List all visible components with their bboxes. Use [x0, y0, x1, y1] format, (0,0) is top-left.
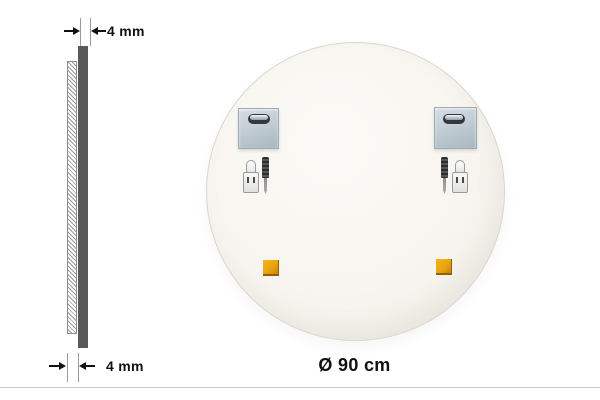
bottom-divider-line	[0, 387, 600, 388]
screw-tip	[264, 178, 267, 194]
screw-thread	[441, 157, 448, 178]
mirror-backing-hatch	[67, 61, 77, 334]
mounting-plate-left-icon	[238, 108, 279, 149]
keyhole-slot-icon	[248, 114, 270, 124]
extension-line	[80, 18, 81, 46]
extension-line	[67, 353, 68, 382]
arrow-right-icon	[64, 30, 74, 32]
plug-body	[243, 172, 259, 193]
wall-plug-right-icon	[452, 160, 468, 193]
adhesive-pad-right-icon	[436, 259, 452, 275]
wall-plug-left-icon	[243, 160, 259, 193]
adhesive-pad-left-icon	[263, 260, 279, 276]
screw-left-icon	[262, 157, 269, 194]
arrow-right-icon	[49, 365, 60, 367]
screw-thread	[262, 157, 269, 178]
product-dimension-diagram: 4 mm 4 mm	[0, 0, 600, 400]
screw-right-icon	[441, 157, 448, 194]
diameter-label: Ø 90 cm	[206, 355, 503, 376]
arrow-left-icon	[97, 30, 106, 32]
mirror-back-view	[206, 42, 505, 341]
bottom-thickness-label: 4 mm	[106, 358, 144, 374]
slot-bar-icon	[445, 115, 463, 120]
mirror-glass-edge	[78, 46, 88, 348]
mounting-plate-right-icon	[434, 107, 477, 149]
screw-tip	[443, 178, 446, 194]
plug-body	[452, 172, 468, 193]
arrow-left-icon	[85, 365, 95, 367]
slot-bar-icon	[250, 115, 268, 120]
keyhole-slot-icon	[443, 114, 465, 124]
top-thickness-label: 4 mm	[107, 23, 145, 39]
